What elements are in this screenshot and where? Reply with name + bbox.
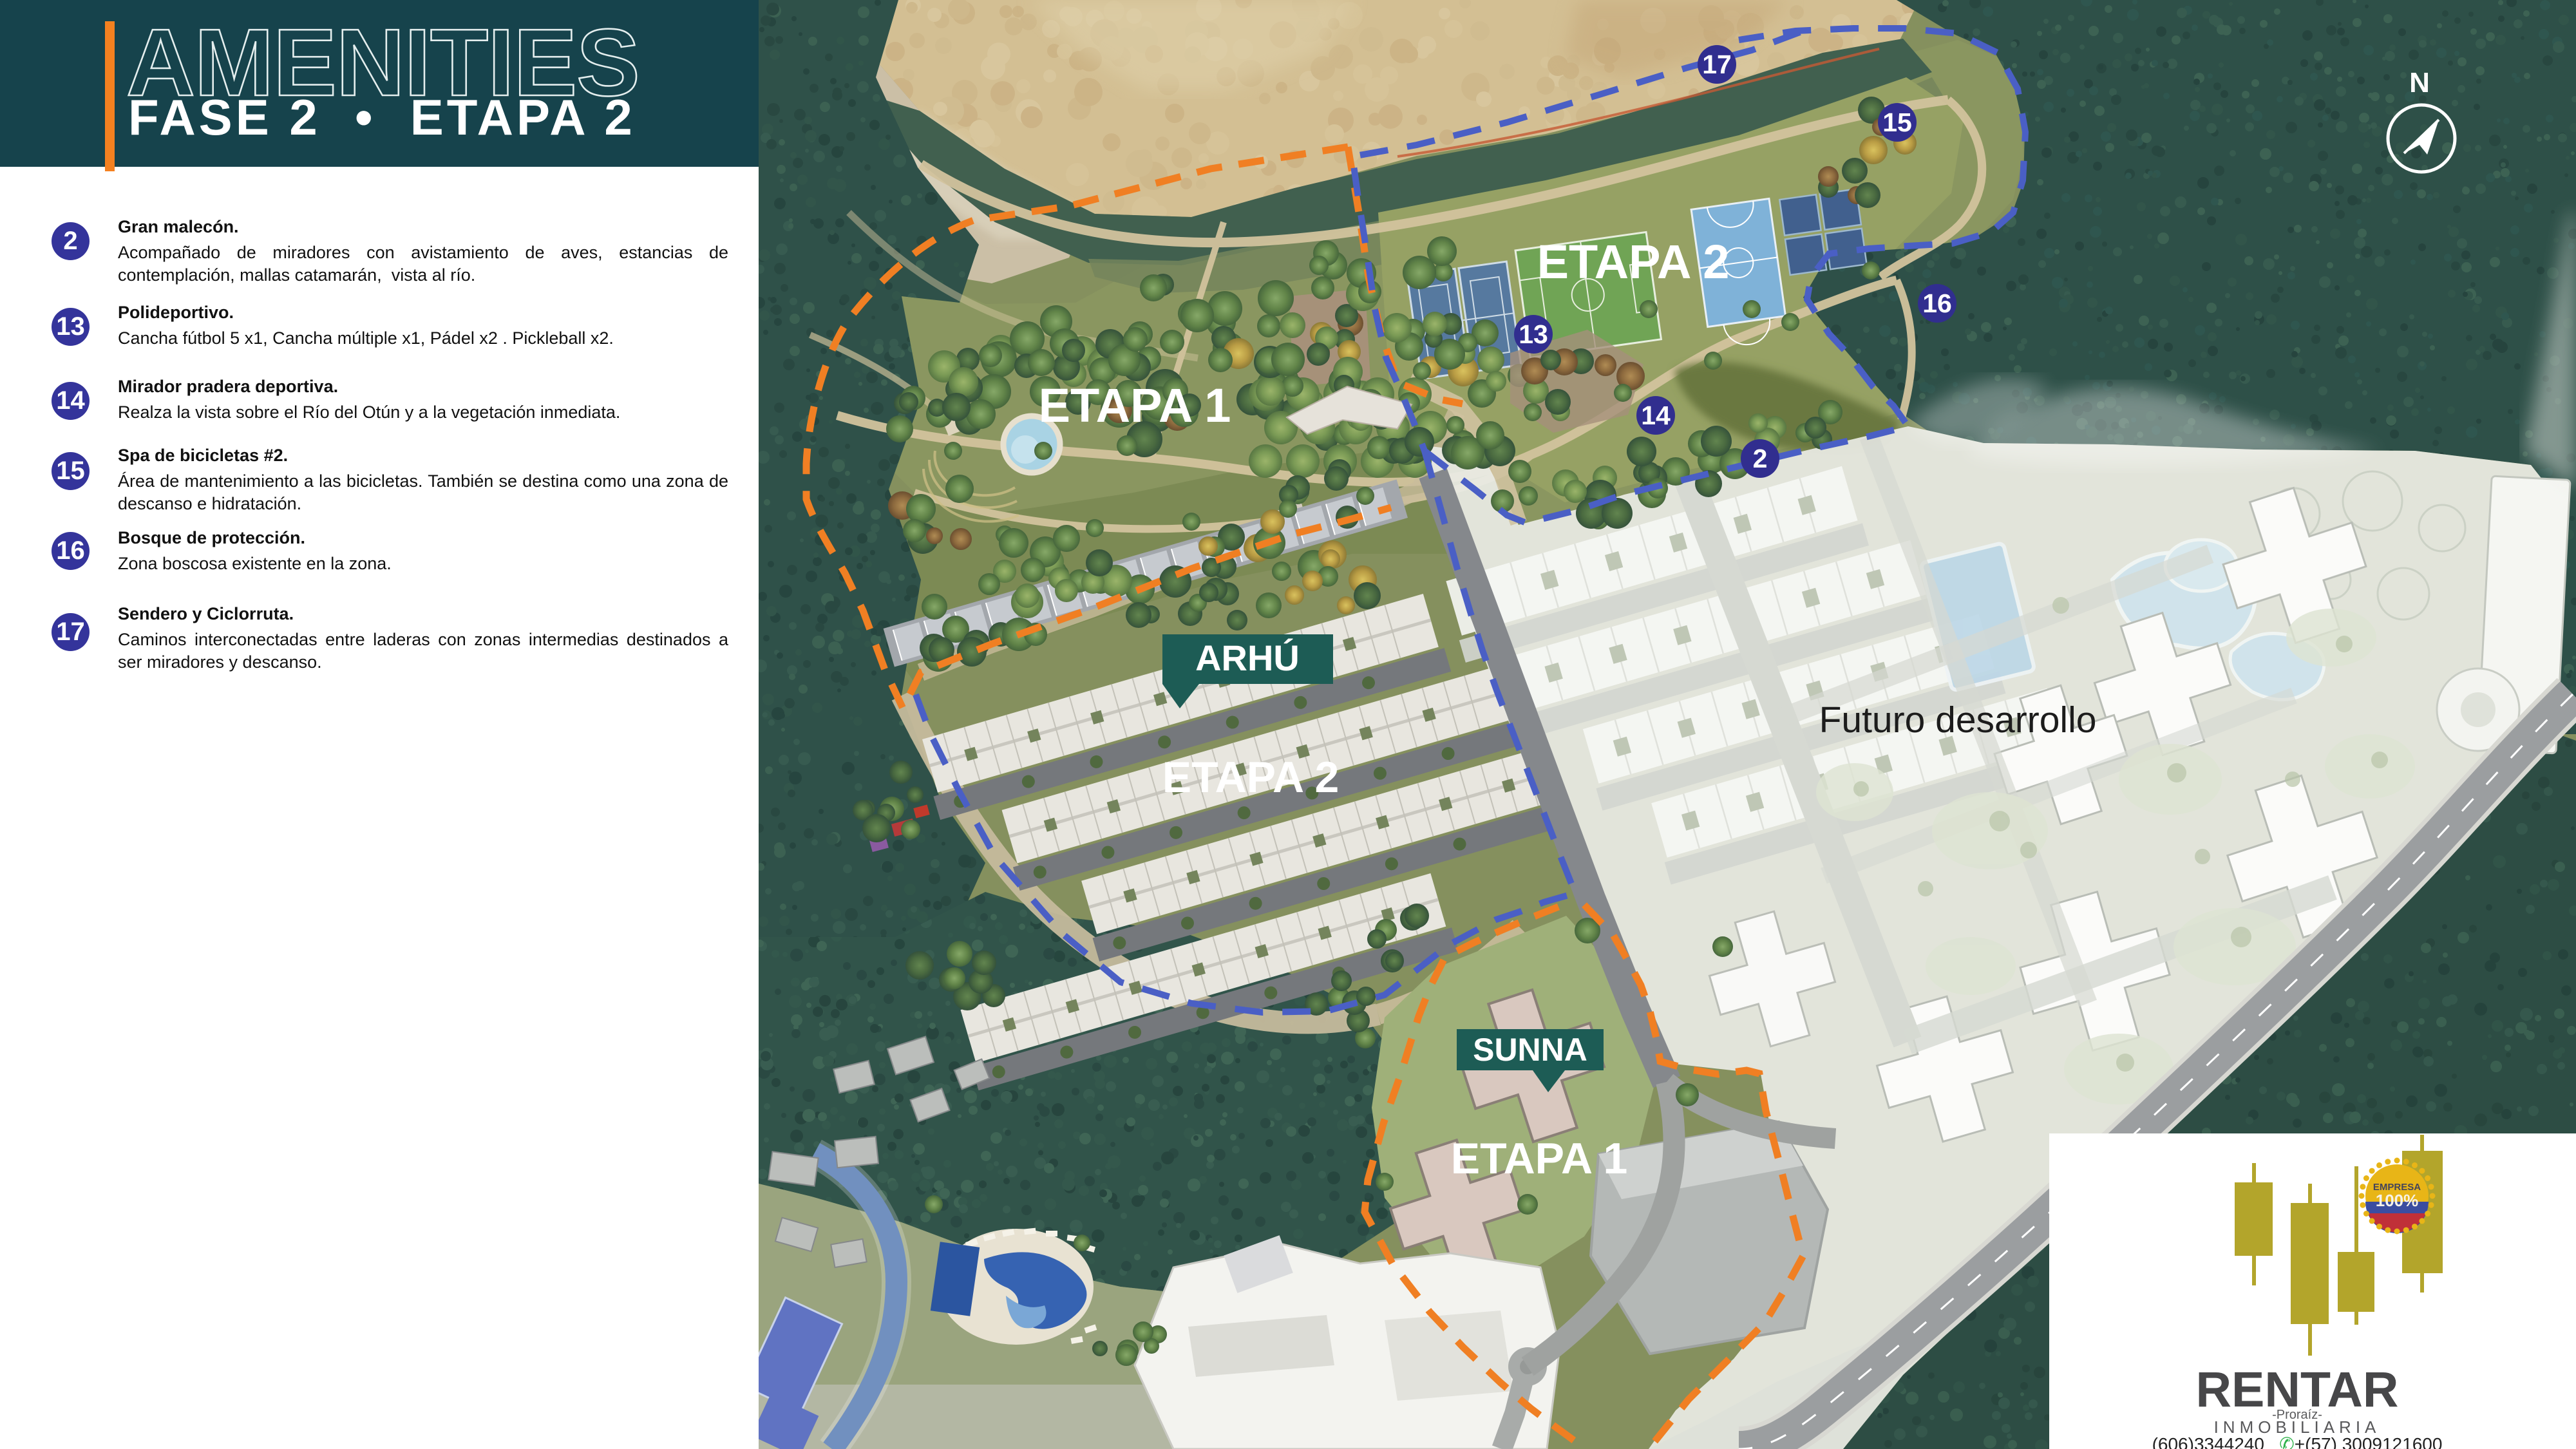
svg-text:N: N xyxy=(2409,67,2430,99)
svg-text:100%: 100% xyxy=(2376,1191,2419,1210)
svg-text:15: 15 xyxy=(1882,108,1912,137)
svg-text:ETAPA 1: ETAPA 1 xyxy=(1451,1134,1628,1183)
svg-text:ETAPA 2: ETAPA 2 xyxy=(1537,235,1730,289)
svg-text:17: 17 xyxy=(1702,50,1732,79)
svg-text:14: 14 xyxy=(1641,401,1671,430)
svg-text:16: 16 xyxy=(1922,289,1952,318)
svg-text:ETAPA 1: ETAPA 1 xyxy=(1039,379,1231,432)
svg-text:2: 2 xyxy=(1753,444,1768,473)
svg-text:13: 13 xyxy=(1519,319,1548,349)
svg-text:SUNNA: SUNNA xyxy=(1473,1032,1587,1068)
svg-text:ETAPA 2: ETAPA 2 xyxy=(1162,753,1340,802)
svg-text:ARHÚ: ARHÚ xyxy=(1195,638,1300,678)
svg-text:Futuro desarrollo: Futuro desarrollo xyxy=(1819,699,2097,741)
